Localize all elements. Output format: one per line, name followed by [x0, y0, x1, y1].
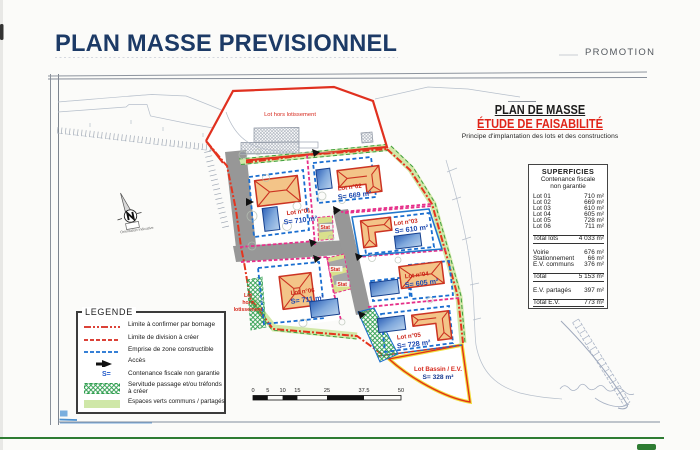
svg-text:5: 5 [266, 388, 269, 394]
svg-text:Lot Bassin / E.V.: Lot Bassin / E.V. [414, 366, 462, 373]
svg-text:S= 328 m²: S= 328 m² [423, 374, 455, 381]
svg-text:Stat: Stat [338, 282, 348, 288]
svg-text:lotissement: lotissement [234, 307, 263, 313]
svg-text:10: 10 [279, 388, 285, 394]
svg-text:0: 0 [251, 388, 254, 394]
svg-text:Stat: Stat [331, 267, 341, 273]
svg-text:50: 50 [398, 388, 404, 394]
svg-text:Lot hors lotissement: Lot hors lotissement [264, 112, 316, 118]
svg-text:Stat: Stat [321, 225, 331, 231]
svg-text:hors: hors [242, 300, 253, 306]
svg-text:Lot: Lot [244, 293, 252, 299]
svg-text:37.5: 37.5 [359, 388, 370, 394]
svg-text:15: 15 [294, 388, 300, 394]
svg-text:25: 25 [324, 388, 330, 394]
